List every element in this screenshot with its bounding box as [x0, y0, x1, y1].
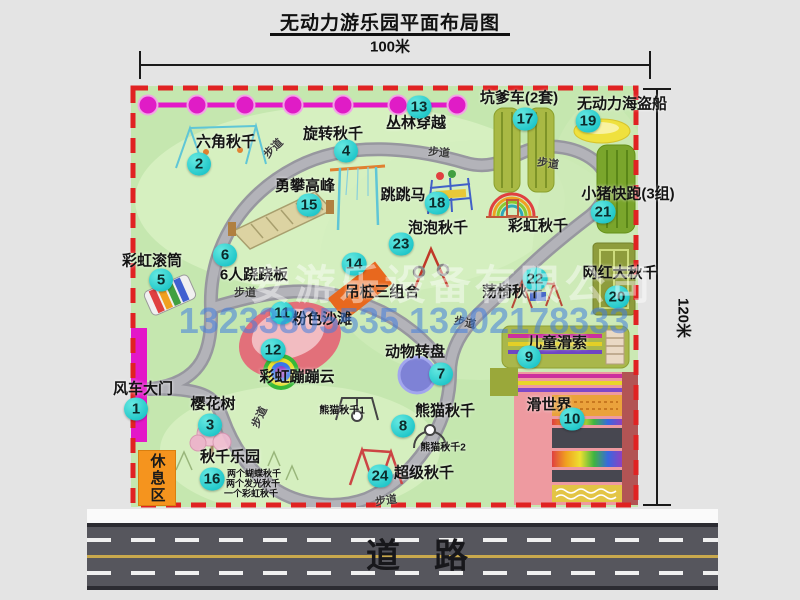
big-swing-icon [593, 243, 635, 315]
rest-area-zone: 休息区 [138, 450, 176, 506]
page-title: 无动力游乐园平面布局图 [280, 8, 500, 35]
pig-run-icon [597, 145, 635, 233]
dim-top-label: 100米 [370, 36, 410, 57]
screenshot-canvas: 无动力游乐园平面布局图 100米 120米 [0, 0, 800, 600]
pirate-ship-icon [574, 119, 630, 143]
rest-area-label: 休息区 [147, 453, 168, 504]
kids-zipline-icon [502, 326, 629, 368]
animal-carousel-icon [399, 357, 435, 393]
dim-right-label: 120米 [674, 298, 695, 338]
